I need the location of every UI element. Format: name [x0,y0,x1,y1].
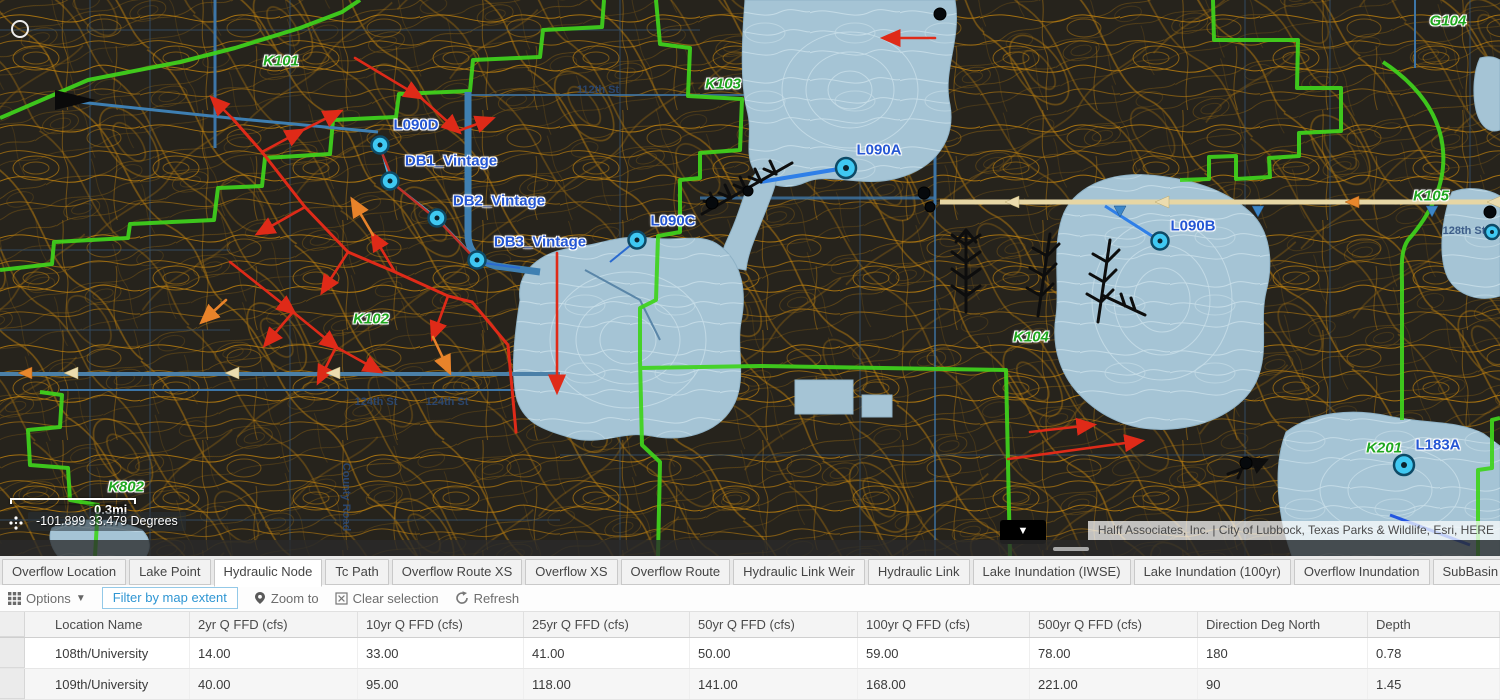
filter-by-map-extent-button[interactable]: Filter by map extent [102,587,238,609]
tab-lake-inundation-iwse[interactable]: Lake Inundation (IWSE) [973,559,1131,585]
table-body: 108th/University14.0033.0041.0050.0059.0… [0,638,1500,700]
map-pin-icon [254,591,266,605]
tab-overflow-route[interactable]: Overflow Route [621,559,731,585]
table-resize-handle[interactable] [0,540,1500,556]
column-header-depth[interactable]: Depth [1368,612,1500,637]
cell-25yr-q-ffd-cfs: 41.00 [524,638,690,668]
cell-depth: 1.45 [1368,669,1500,699]
cell-2yr-q-ffd-cfs: 14.00 [190,638,358,668]
row-handle-cell[interactable] [0,669,25,699]
cell-500yr-q-ffd-cfs: 78.00 [1030,638,1198,668]
caret-down-icon: ▼ [76,593,86,604]
refresh-label: Refresh [474,591,520,606]
tab-tc-path[interactable]: Tc Path [325,559,388,585]
row-handle-cell[interactable] [0,638,25,668]
options-menu-button[interactable]: Options ▼ [8,591,86,606]
app-window: K101K103G104K105K102K104K802K201L090DDB1… [0,0,1500,700]
options-label: Options [26,591,71,606]
tab-overflow-location[interactable]: Overflow Location [2,559,126,585]
grid-icon [8,592,21,605]
refresh-icon [455,591,469,605]
attribute-table: Location Name2yr Q FFD (cfs)10yr Q FFD (… [0,612,1500,700]
cell-50yr-q-ffd-cfs: 141.00 [690,669,858,699]
tab-subbasin[interactable]: SubBasin [1433,559,1500,585]
column-header-direction-deg-north[interactable]: Direction Deg North [1198,612,1368,637]
resize-handle-pill[interactable] [1053,547,1089,551]
map-canvas[interactable]: K101K103G104K105K102K104K802K201L090DDB1… [0,0,1500,556]
header-handle-cell [0,612,25,637]
column-header-50yr-q-ffd-cfs[interactable]: 50yr Q FFD (cfs) [690,612,858,637]
cell-location-name: 108th/University [25,638,190,668]
tab-lake-inundation-100yr[interactable]: Lake Inundation (100yr) [1134,559,1291,585]
column-header-500yr-q-ffd-cfs[interactable]: 500yr Q FFD (cfs) [1030,612,1198,637]
column-header-100yr-q-ffd-cfs[interactable]: 100yr Q FFD (cfs) [858,612,1030,637]
map-attribution: Halff Associates, Inc. | City of Lubbock… [1088,521,1500,540]
cell-50yr-q-ffd-cfs: 50.00 [690,638,858,668]
chevron-down-icon: ▼ [1018,525,1029,537]
column-header-25yr-q-ffd-cfs[interactable]: 25yr Q FFD (cfs) [524,612,690,637]
crosshair-icon [8,515,24,531]
zoom-to-label: Zoom to [271,591,319,606]
coordinate-readout: -101.899 33.479 Degrees [28,512,186,531]
cell-10yr-q-ffd-cfs: 33.00 [358,638,524,668]
table-row[interactable]: 109th/University40.0095.00118.00141.0016… [0,669,1500,700]
cell-depth: 0.78 [1368,638,1500,668]
compass-icon[interactable] [11,20,29,38]
cell-10yr-q-ffd-cfs: 95.00 [358,669,524,699]
cell-direction-deg-north: 180 [1198,638,1368,668]
clear-selection-icon [335,592,348,605]
attribute-table-tabs: Overflow LocationLake PointHydraulic Nod… [0,556,1500,585]
cell-direction-deg-north: 90 [1198,669,1368,699]
table-header-row: Location Name2yr Q FFD (cfs)10yr Q FFD (… [0,612,1500,638]
cell-100yr-q-ffd-cfs: 59.00 [858,638,1030,668]
table-toolbar: Options ▼ Filter by map extent Zoom to C… [0,585,1500,612]
map-svg [0,0,1500,556]
tab-hydraulic-link[interactable]: Hydraulic Link [868,559,970,585]
cell-2yr-q-ffd-cfs: 40.00 [190,669,358,699]
cell-25yr-q-ffd-cfs: 118.00 [524,669,690,699]
tab-hydraulic-node[interactable]: Hydraulic Node [214,559,323,587]
cell-location-name: 109th/University [25,669,190,699]
cell-100yr-q-ffd-cfs: 168.00 [858,669,1030,699]
cell-500yr-q-ffd-cfs: 221.00 [1030,669,1198,699]
column-header-10yr-q-ffd-cfs[interactable]: 10yr Q FFD (cfs) [358,612,524,637]
tab-lake-point[interactable]: Lake Point [129,559,210,585]
table-row[interactable]: 108th/University14.0033.0041.0050.0059.0… [0,638,1500,669]
column-header-location-name[interactable]: Location Name [25,612,190,637]
clear-selection-button[interactable]: Clear selection [335,591,439,606]
zoom-to-button[interactable]: Zoom to [254,591,319,606]
column-header-2yr-q-ffd-cfs[interactable]: 2yr Q FFD (cfs) [190,612,358,637]
tab-hydraulic-link-weir[interactable]: Hydraulic Link Weir [733,559,865,585]
refresh-button[interactable]: Refresh [455,591,520,606]
tab-overflow-route-xs[interactable]: Overflow Route XS [392,559,523,585]
tab-overflow-xs[interactable]: Overflow XS [525,559,617,585]
clear-selection-label: Clear selection [353,591,439,606]
tab-overflow-inundation[interactable]: Overflow Inundation [1294,559,1430,585]
